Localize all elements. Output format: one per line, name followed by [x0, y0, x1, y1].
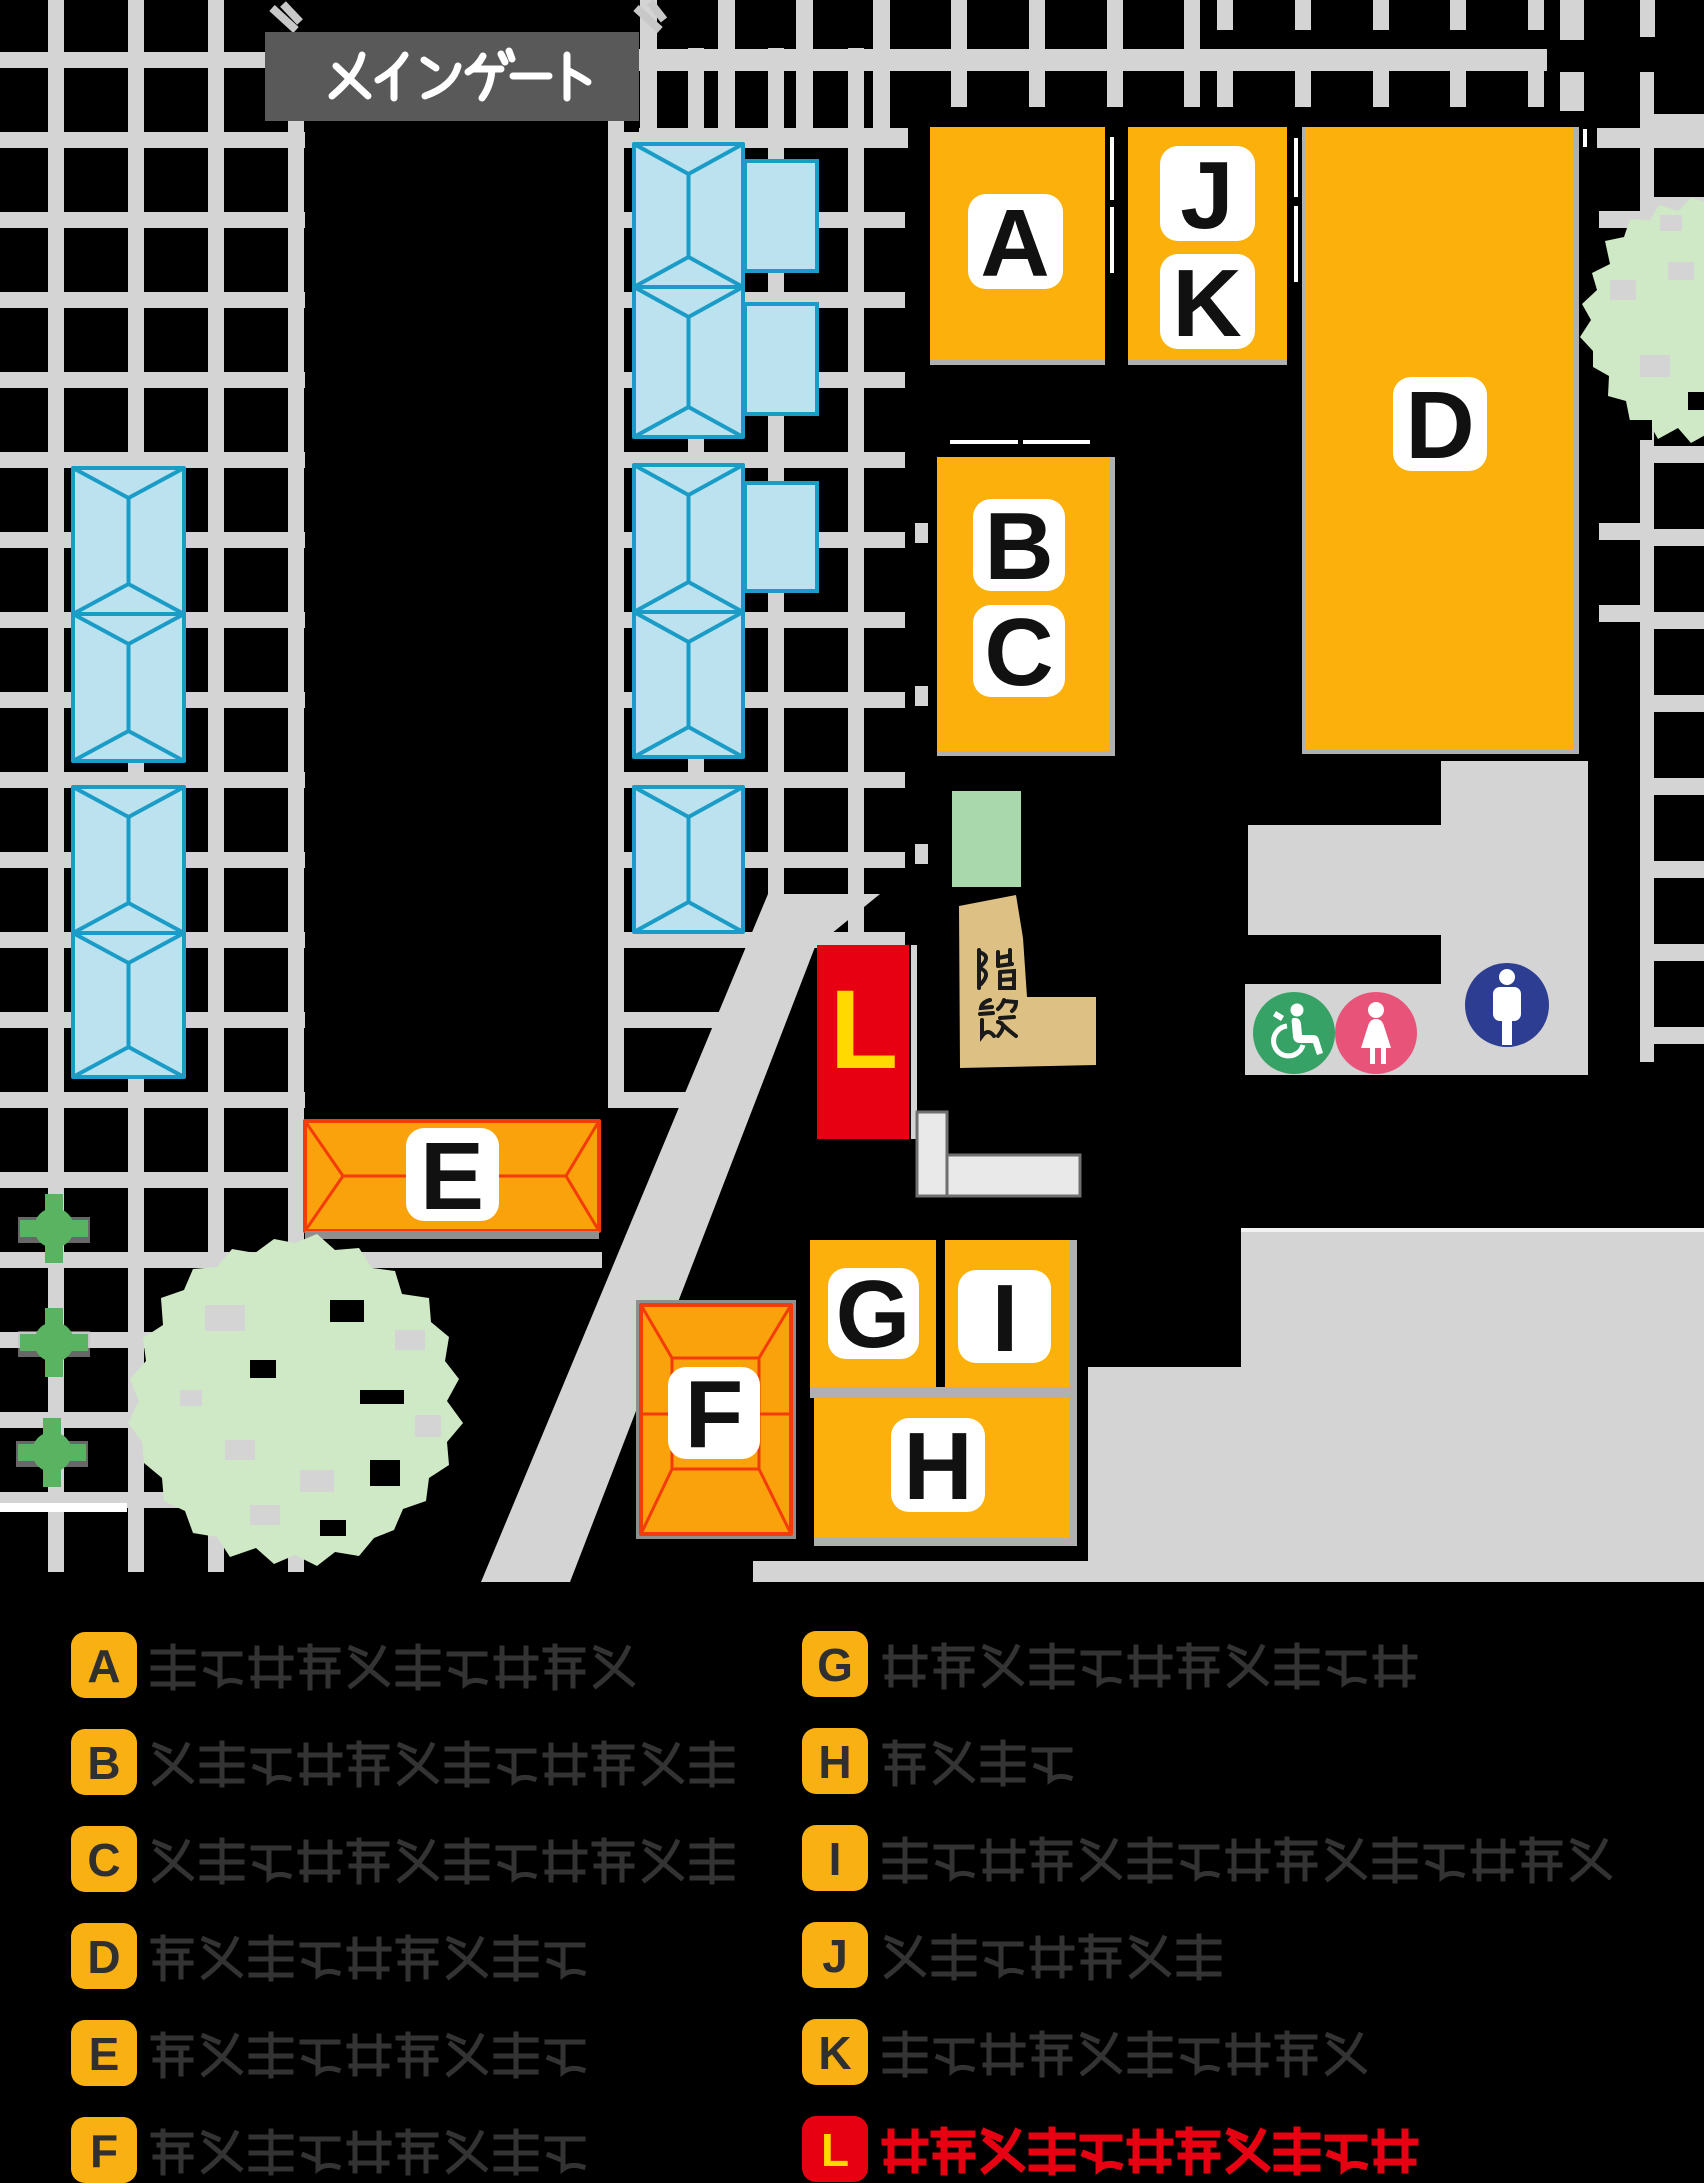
svg-text:E: E: [89, 2028, 120, 2080]
svg-text:B: B: [87, 1737, 120, 1789]
svg-text:E: E: [420, 1123, 484, 1230]
svg-text:C: C: [984, 599, 1053, 706]
svg-text:A: A: [980, 190, 1049, 297]
svg-text:H: H: [903, 1413, 972, 1520]
svg-text:C: C: [87, 1834, 120, 1886]
svg-text:K: K: [818, 2027, 851, 2079]
svg-text:F: F: [685, 1361, 744, 1468]
svg-text:H: H: [818, 1736, 851, 1788]
svg-text:I: I: [992, 1265, 1019, 1372]
svg-text:K: K: [1172, 250, 1241, 357]
svg-text:L: L: [821, 2124, 849, 2176]
svg-text:L: L: [830, 967, 898, 1092]
svg-text:G: G: [817, 1639, 853, 1691]
svg-text:A: A: [87, 1640, 120, 1692]
svg-text:G: G: [836, 1261, 911, 1368]
svg-text:J: J: [822, 1930, 848, 1982]
svg-text:D: D: [1405, 372, 1474, 479]
svg-text:J: J: [1180, 142, 1233, 249]
svg-text:B: B: [984, 493, 1053, 600]
svg-text:I: I: [829, 1833, 842, 1885]
svg-text:D: D: [87, 1931, 120, 1983]
svg-text:F: F: [90, 2125, 118, 2177]
